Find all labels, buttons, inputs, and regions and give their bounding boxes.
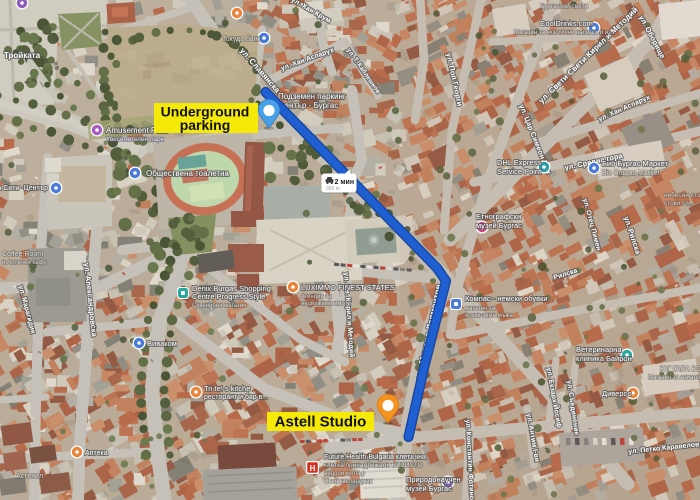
svg-text:Future Health Bulgaria клетъчн: Future Health Bulgaria клетъчна [324,454,426,461]
svg-text:parking: parking [180,117,231,133]
svg-text:Сувенирен магазин: Сувенирен магазин [192,303,246,309]
svg-text:H: H [310,464,316,473]
svg-text:Увеселителен парк: Увеселителен парк [106,136,164,143]
svg-text:Виваком: Виваком [147,339,177,348]
svg-text:Магазин за азиатски цен...: Магазин за азиатски цен... [648,375,700,381]
svg-text:Centre Progress Style: Centre Progress Style [192,292,265,301]
svg-text:Подземен паркинг: Подземен паркинг [278,92,346,101]
svg-text:DHL Express: DHL Express [497,158,541,167]
svg-text:Бургасски свети: Бургасски свети [540,3,589,10]
svg-text:350 m: 350 m [326,186,340,192]
svg-text:Компас - немски обувки: Компас - немски обувки [465,294,548,303]
svg-text:а Сити -Център: а Сити -Център [0,185,48,192]
svg-text:Агенция за: Агенция за [301,294,332,300]
svg-text:магазин за: магазин за [465,306,496,312]
svg-text:Bio Burgas Market: Bio Burgas Market [602,170,660,177]
svg-text:Service Point: Service Point [497,167,542,176]
svg-text:LUXIMMO FINEST STATES: LUXIMMO FINEST STATES [301,283,395,292]
svg-text:Tri te! s kitche: Tri te! s kitche [204,384,250,393]
svg-text:Тройката: Тройката [4,51,41,60]
svg-text:и Алпечен кафе: и Алпечен кафе [2,260,47,266]
svg-text:клетка принадлежали ВИЗИСТО: клетка принадлежали ВИЗИСТО [324,462,423,469]
svg-text:Аптека: Аптека [85,450,108,457]
svg-text:Токуда банк: Токуда банк [222,35,262,43]
svg-text:ресторант и бар в...: ресторант и бар в... [204,393,268,401]
svg-text:Био Бургас Маркет: Био Бургас Маркет [602,159,668,168]
svg-text:Обществена тоалетна: Обществена тоалетна [146,169,230,178]
svg-text:2 мин: 2 мин [335,179,355,186]
svg-text:Ветеринарна: Ветеринарна [576,345,622,354]
svg-text:музей Бургас: музей Бургас [476,221,522,230]
svg-text:Етнографски: Етнографски [476,212,521,221]
svg-text:Astell Studio: Astell Studio [275,414,367,431]
svg-text:Диверсо: Диверсо [602,389,632,398]
svg-text:недвижими имоти: недвижими имоти [301,301,351,307]
svg-text:всеки-зима мъжа: всеки-зима мъжа [465,313,514,319]
svg-text:Магазин за екзотични напитки и: Магазин за екзотични напитки и из... [514,30,616,36]
svg-text:стоки от...: стоки от... [664,200,693,207]
svg-text:клиника Байрон: клиника Байрон [576,354,632,363]
svg-text:ЮГ ГАРА ВС: ЮГ ГАРА ВС [660,366,700,373]
svg-text:небесни стоки: небесни стоки [664,191,700,199]
svg-text:Свен каспарджик: Свен каспарджик [324,479,373,485]
svg-text:музей Бургас: музей Бургас [406,484,452,493]
svg-text:Coffee Room: Coffee Room [2,251,43,258]
svg-text:Астенил: Астенил [16,473,43,480]
svg-text:CoolDrinks.com: CoolDrinks.com [540,19,593,28]
svg-text:андрои келтър: андрои келтър [324,471,366,477]
svg-text:Природонаучен: Природонаучен [406,475,461,484]
